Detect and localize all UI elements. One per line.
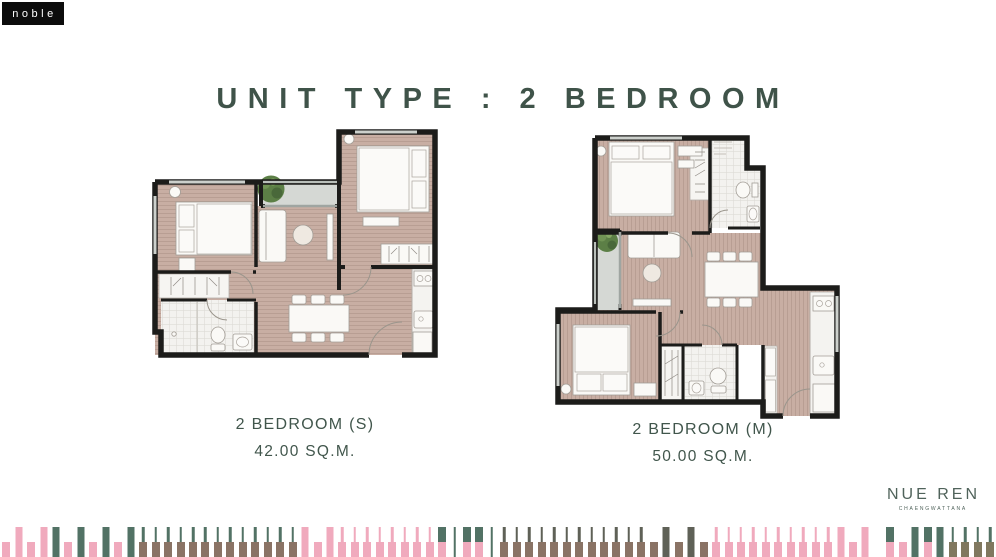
- toilet: [710, 368, 726, 384]
- pattern-bar: [399, 527, 411, 557]
- pattern-bar: [75, 527, 87, 557]
- pattern-bar: [37, 527, 49, 557]
- pillow: [577, 374, 601, 391]
- pattern-bar: [62, 527, 74, 557]
- pattern-bar: [735, 527, 747, 557]
- pillow: [643, 146, 670, 159]
- tv-console: [327, 214, 333, 260]
- noble-logo: noble: [2, 2, 64, 25]
- pattern-bar: [984, 527, 996, 557]
- shower-drain: [172, 332, 176, 336]
- pattern-bar: [859, 527, 871, 557]
- bench: [363, 217, 399, 226]
- pattern-bar: [125, 527, 137, 557]
- tv-console: [633, 299, 671, 306]
- pattern-bar: [511, 527, 523, 557]
- pillow: [612, 146, 639, 159]
- pattern-bar: [349, 527, 361, 557]
- pillow: [412, 150, 426, 177]
- lamp: [170, 187, 181, 198]
- pattern-bar: [785, 527, 797, 557]
- pattern-bar: [747, 527, 759, 557]
- pattern-bar: [598, 527, 610, 557]
- pattern-bar: [648, 527, 660, 557]
- pattern-bar: [461, 527, 473, 557]
- dining-table: [289, 305, 349, 332]
- pattern-bar: [187, 527, 199, 557]
- kitchen-appliances: [412, 269, 433, 355]
- pattern-bar: [137, 527, 149, 557]
- pattern-bar: [946, 527, 958, 557]
- pattern-bar: [436, 527, 448, 557]
- pattern-bar: [473, 527, 485, 557]
- unit-label-m: 2 BEDROOM (M) 50.00 SQ.M.: [593, 421, 813, 466]
- pattern-bar: [834, 527, 846, 557]
- floor-plan-2-bedroom-s: [149, 122, 439, 367]
- floor-plan-2-bedroom-m: [552, 124, 842, 425]
- pattern-bar: [174, 527, 186, 557]
- dining-set: [289, 295, 349, 342]
- pattern-bar: [423, 527, 435, 557]
- footer-barcode-pattern: [0, 527, 996, 557]
- unit-m-area: 50.00 SQ.M.: [593, 448, 813, 466]
- coffee-table: [293, 225, 313, 245]
- bedroom-2-wardrobe: [381, 244, 435, 264]
- pattern-bar: [535, 527, 547, 557]
- pattern-bar: [448, 527, 460, 557]
- floor-plan-m-drawing: [552, 124, 842, 420]
- pattern-bar: [249, 527, 261, 557]
- pattern-bar: [722, 527, 734, 557]
- lamp: [561, 384, 571, 394]
- noble-logo-text: noble: [9, 8, 56, 20]
- pattern-bar: [286, 527, 298, 557]
- pattern-bar: [710, 527, 722, 557]
- pattern-bar: [560, 527, 572, 557]
- pattern-bar: [872, 527, 884, 557]
- pattern-bar: [660, 527, 672, 557]
- pattern-bar: [922, 527, 934, 557]
- pattern-bar: [149, 527, 161, 557]
- pattern-bar: [274, 527, 286, 557]
- pattern-bar: [548, 527, 560, 557]
- nue-ren-logo: NUE REN CHAENGWATTANA: [877, 486, 987, 512]
- pattern-bar: [809, 527, 821, 557]
- pattern-bar: [635, 527, 647, 557]
- pattern-bar: [50, 527, 62, 557]
- floor-plan-s-drawing: [149, 122, 439, 362]
- project-name: NUE REN: [877, 486, 987, 504]
- cabinet: [813, 384, 835, 412]
- pattern-bar: [959, 527, 971, 557]
- pattern-bar: [212, 527, 224, 557]
- pillow: [179, 230, 194, 252]
- pattern-bar: [324, 527, 336, 557]
- pattern-bar: [623, 527, 635, 557]
- pattern-bar: [12, 527, 24, 557]
- pattern-bar: [909, 527, 921, 557]
- unit-s-area: 42.00 SQ.M.: [195, 443, 415, 461]
- lamp: [344, 134, 354, 144]
- pattern-bar: [573, 527, 585, 557]
- pattern-bar: [672, 527, 684, 557]
- pattern-bar: [87, 527, 99, 557]
- pattern-bar: [199, 527, 211, 557]
- pattern-bar: [336, 527, 348, 557]
- wardrobe: [159, 274, 229, 298]
- sofa: [259, 210, 286, 262]
- pattern-bar: [361, 527, 373, 557]
- pattern-bar: [386, 527, 398, 557]
- pattern-bar: [162, 527, 174, 557]
- pattern-bar: [25, 527, 37, 557]
- pattern-bar: [585, 527, 597, 557]
- pattern-bar: [411, 527, 423, 557]
- pattern-bar: [685, 527, 697, 557]
- dresser: [634, 383, 656, 396]
- pattern-bar: [498, 527, 510, 557]
- page-title: UNIT TYPE : 2 BEDROOM: [0, 83, 996, 116]
- dining-table: [705, 262, 758, 297]
- unit-s-name: 2 BEDROOM (S): [195, 416, 415, 434]
- bench: [678, 146, 702, 156]
- toilet: [736, 182, 750, 198]
- pattern-bar: [224, 527, 236, 557]
- pattern-bar: [847, 527, 859, 557]
- pattern-bar: [237, 527, 249, 557]
- coffee-table: [643, 264, 661, 282]
- pattern-bar: [262, 527, 274, 557]
- pattern-bar: [374, 527, 386, 557]
- unit-label-s: 2 BEDROOM (S) 42.00 SQ.M.: [195, 416, 415, 461]
- pattern-bar: [112, 527, 124, 557]
- pillow: [179, 205, 194, 227]
- pattern-bar: [697, 527, 709, 557]
- pattern-bar: [311, 527, 323, 557]
- pattern-bar: [299, 527, 311, 557]
- cabinet: [413, 332, 432, 353]
- toilet: [211, 327, 225, 343]
- pattern-bar: [884, 527, 896, 557]
- pattern-bar: [772, 527, 784, 557]
- unit-m-name: 2 BEDROOM (M): [593, 421, 813, 439]
- pattern-bar: [971, 527, 983, 557]
- brochure-slide: noble UNIT TYPE : 2 BEDROOM: [0, 0, 996, 557]
- pattern-bar: [897, 527, 909, 557]
- bedroom-2-bed: [344, 134, 429, 226]
- pillow: [603, 374, 627, 391]
- pattern-bar: [0, 527, 12, 557]
- wardrobe: [660, 345, 683, 402]
- dining-set: [705, 252, 758, 307]
- pattern-bar: [822, 527, 834, 557]
- project-location: CHAENGWATTANA: [877, 506, 987, 512]
- pattern-bar: [486, 527, 498, 557]
- pillow: [412, 181, 426, 208]
- pattern-bar: [100, 527, 112, 557]
- pattern-bar: [760, 527, 772, 557]
- pattern-bar: [934, 527, 946, 557]
- pattern-bar: [797, 527, 809, 557]
- pattern-bar: [610, 527, 622, 557]
- pattern-bar: [523, 527, 535, 557]
- nightstand: [179, 258, 195, 271]
